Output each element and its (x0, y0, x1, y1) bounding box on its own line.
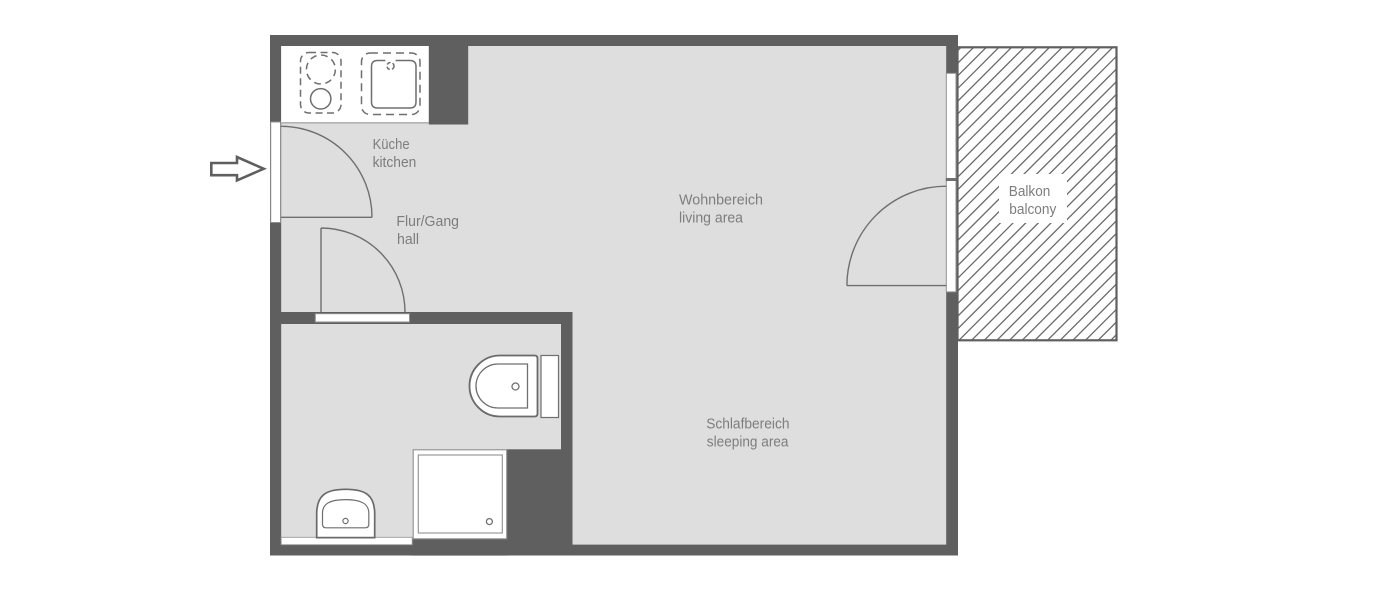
svg-text:Balkon: Balkon (1009, 184, 1051, 200)
svg-text:sleeping area: sleeping area (707, 434, 789, 450)
svg-text:Wohnbereich: Wohnbereich (679, 192, 763, 208)
svg-text:Küche: Küche (373, 137, 410, 153)
svg-text:balcony: balcony (1009, 202, 1057, 218)
svg-text:hall: hall (397, 232, 419, 248)
svg-text:living area: living area (679, 210, 743, 226)
svg-text:kitchen: kitchen (373, 155, 417, 171)
svg-text:Schlafbereich: Schlafbereich (706, 416, 789, 432)
svg-text:Flur/Gang: Flur/Gang (396, 214, 459, 230)
